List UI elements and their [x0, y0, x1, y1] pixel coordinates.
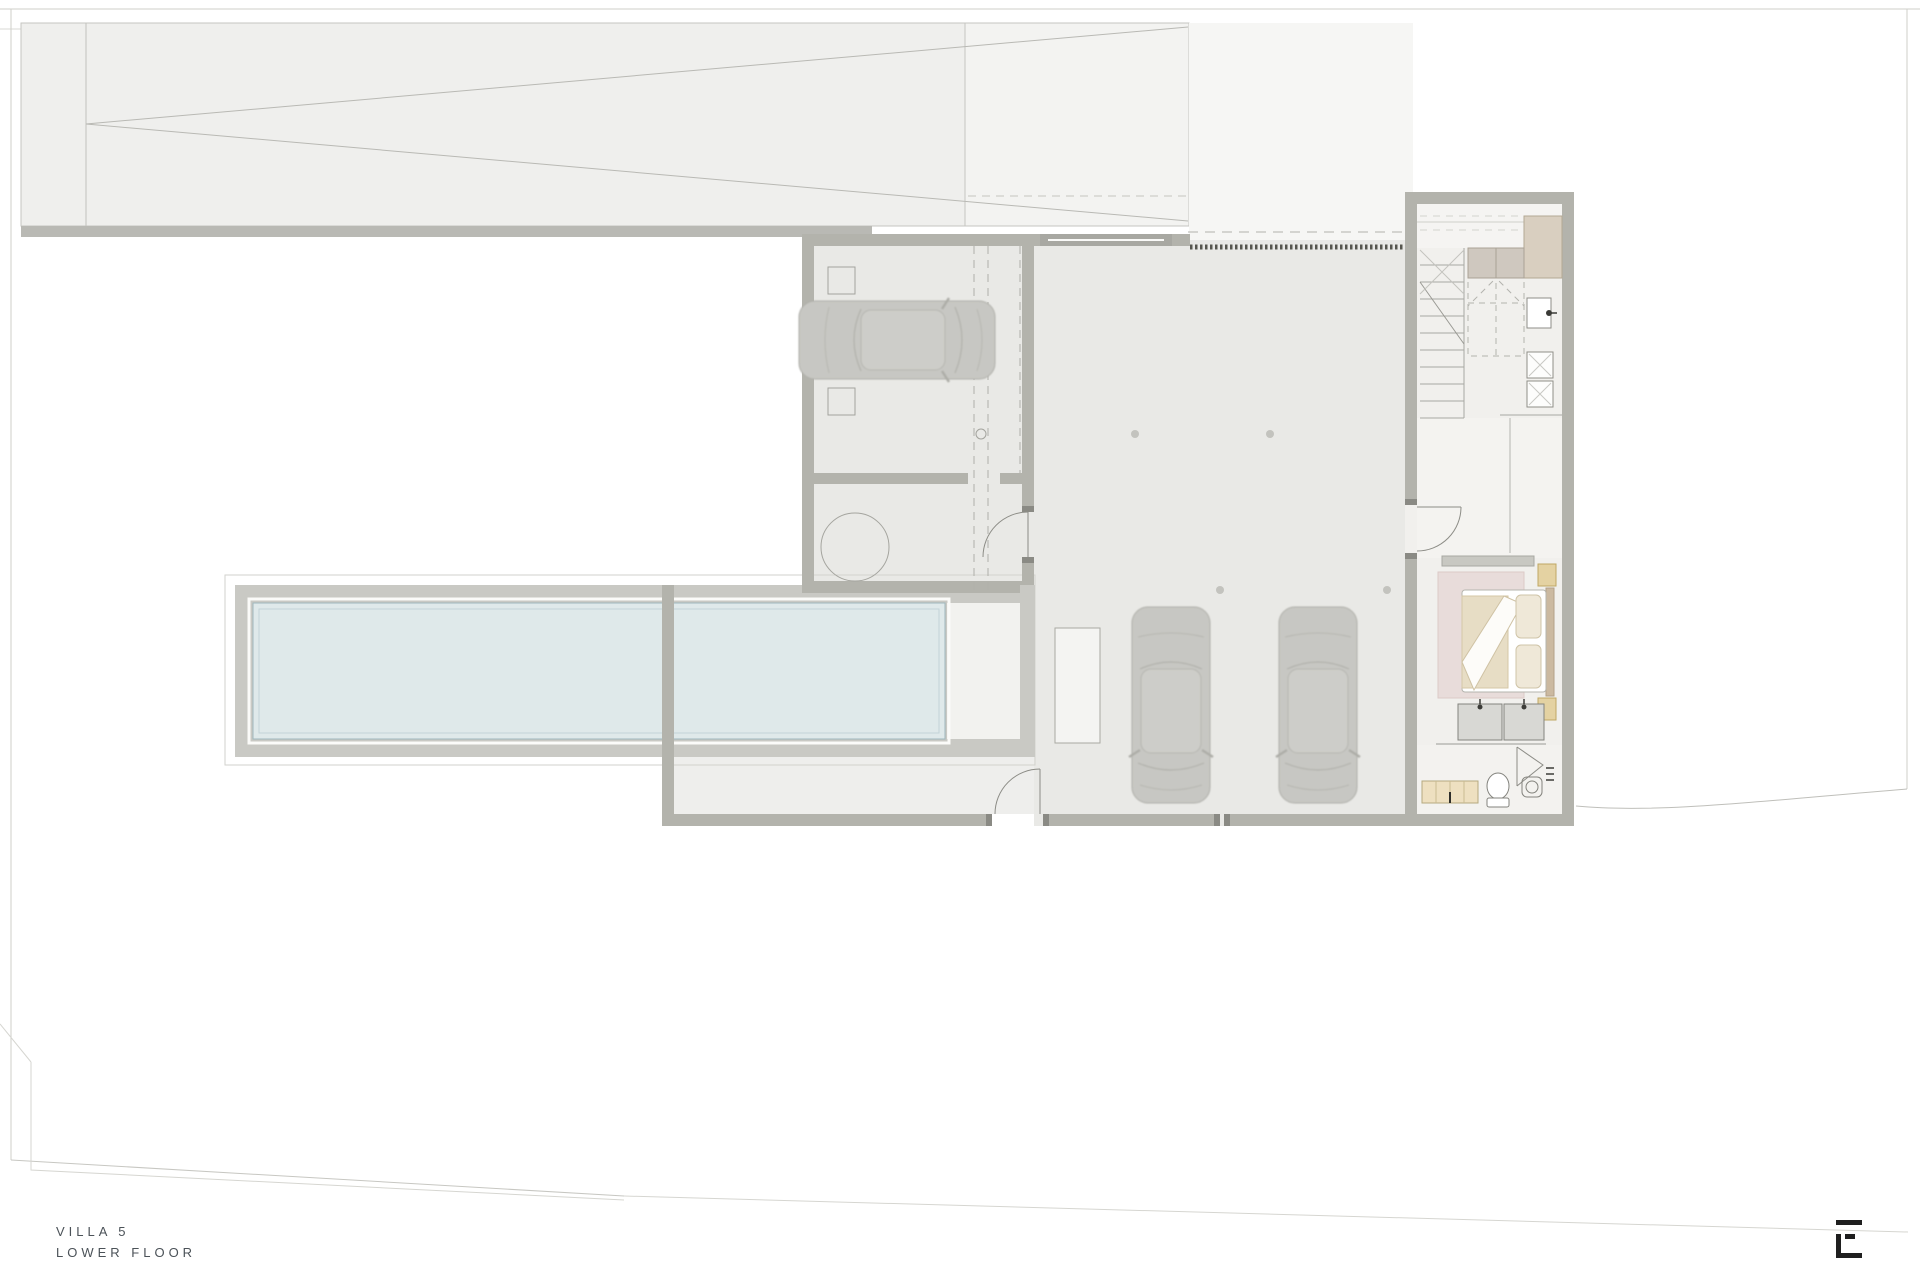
- terrain-contour-line: [1576, 789, 1907, 808]
- retaining-wall: [21, 226, 872, 237]
- floor-label: LOWER FLOOR: [56, 1243, 196, 1264]
- floor-plan-drawing: [0, 0, 1920, 1269]
- bench: [1422, 781, 1478, 803]
- court-car: [1276, 607, 1360, 803]
- storage-cabinet: [1055, 628, 1100, 743]
- pillow: [1516, 595, 1541, 638]
- logo-e-monogram: [1836, 1220, 1863, 1259]
- toilet: [1487, 773, 1509, 807]
- counter: [1524, 216, 1562, 278]
- swimming-pool: [225, 575, 1035, 765]
- garage-car: [799, 298, 995, 382]
- project-title: VILLA 5: [56, 1222, 196, 1243]
- title-block: VILLA 5 LOWER FLOOR: [56, 1222, 196, 1264]
- pillow: [1516, 645, 1541, 688]
- court-car: [1129, 607, 1213, 803]
- floor-plan-sheet: VILLA 5 LOWER FLOOR: [0, 0, 1920, 1269]
- low-console: [1442, 556, 1534, 566]
- pool-water: [253, 603, 945, 739]
- nightstand: [1538, 564, 1556, 586]
- bed: [1462, 588, 1554, 696]
- driveway-ramp: [21, 23, 1413, 245]
